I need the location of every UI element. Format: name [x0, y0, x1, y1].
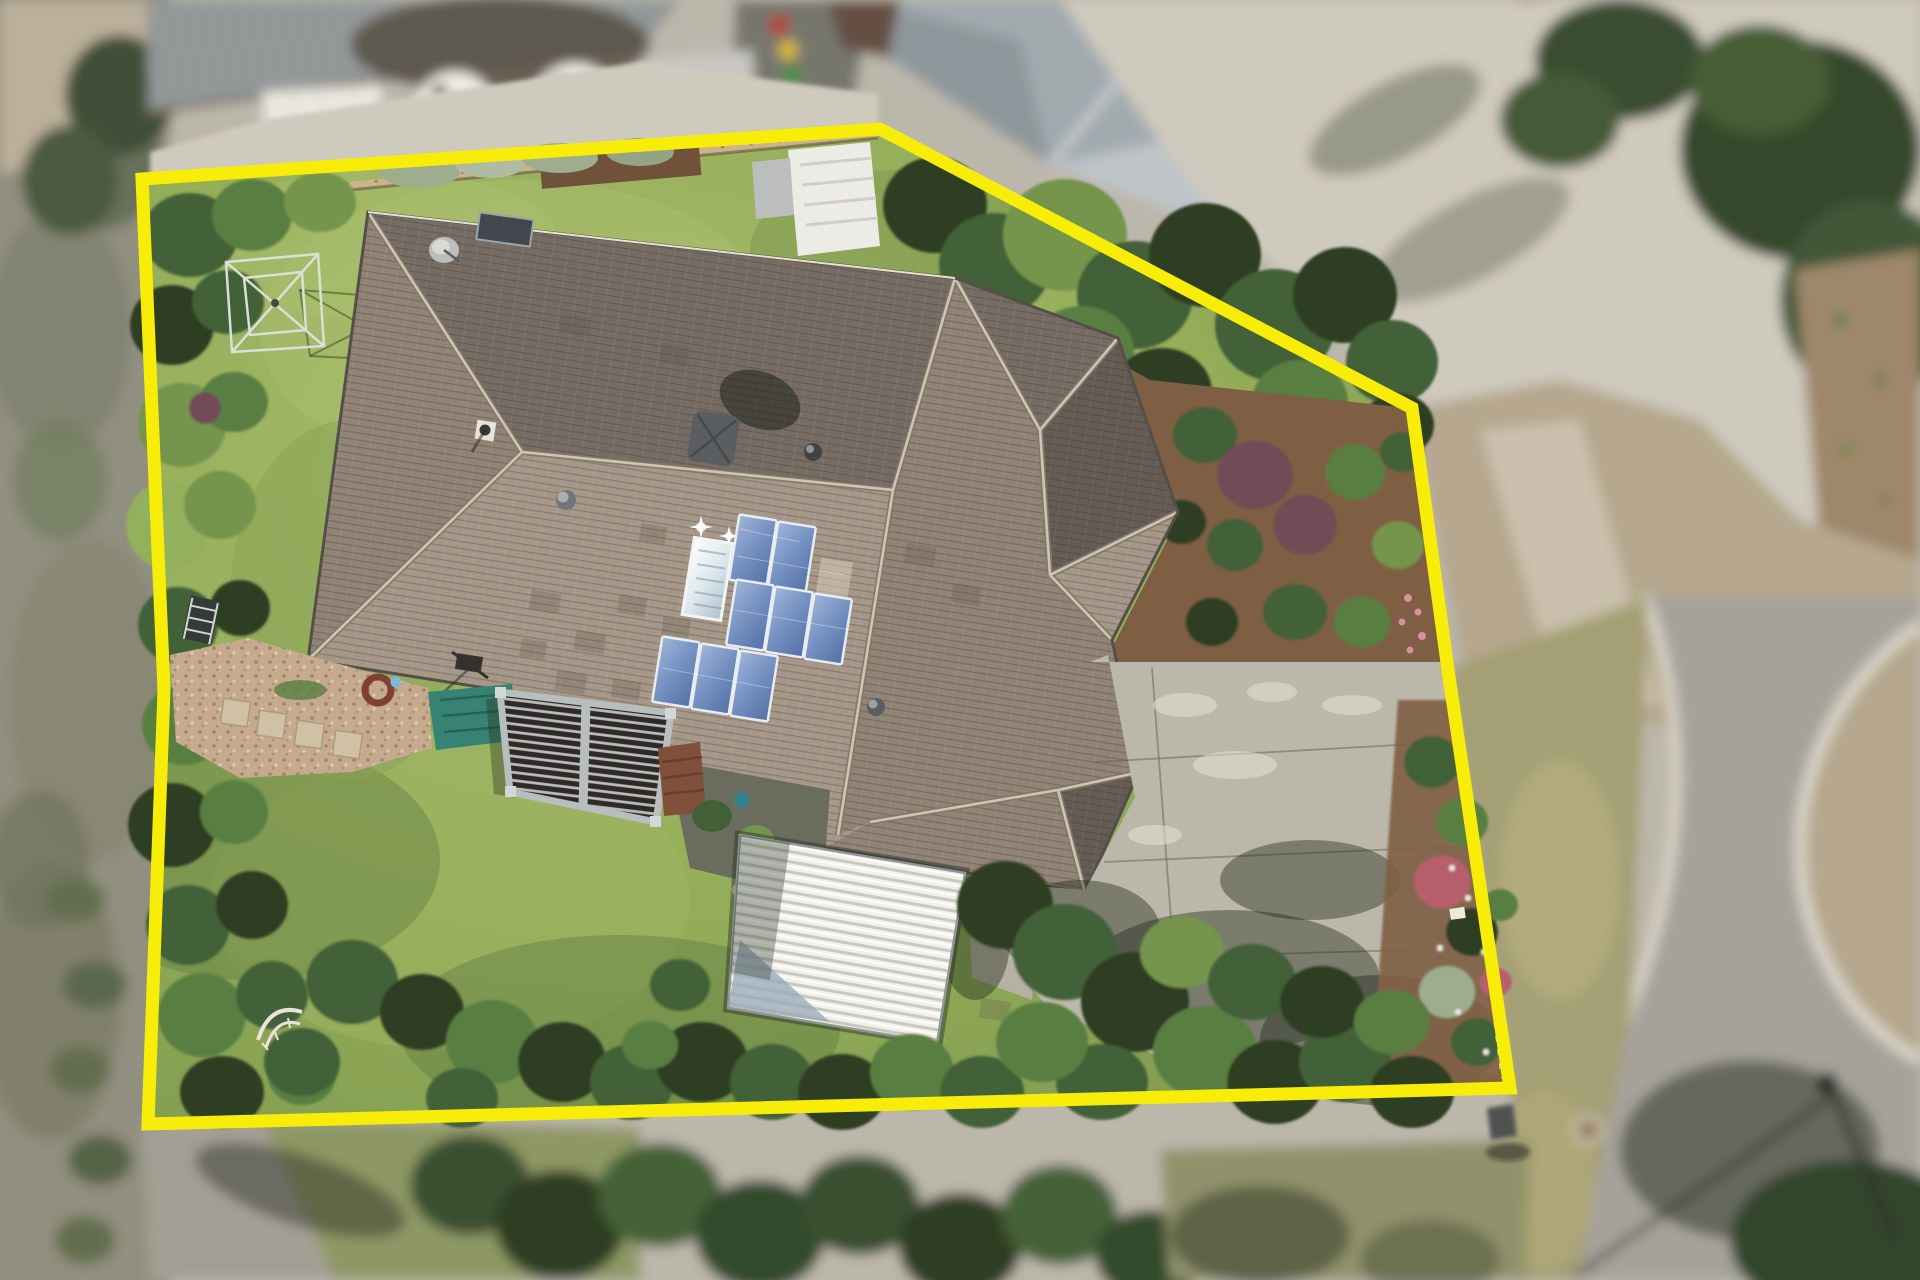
photo-warm-grade	[0, 0, 1920, 1280]
aerial-photo	[0, 0, 1920, 1280]
